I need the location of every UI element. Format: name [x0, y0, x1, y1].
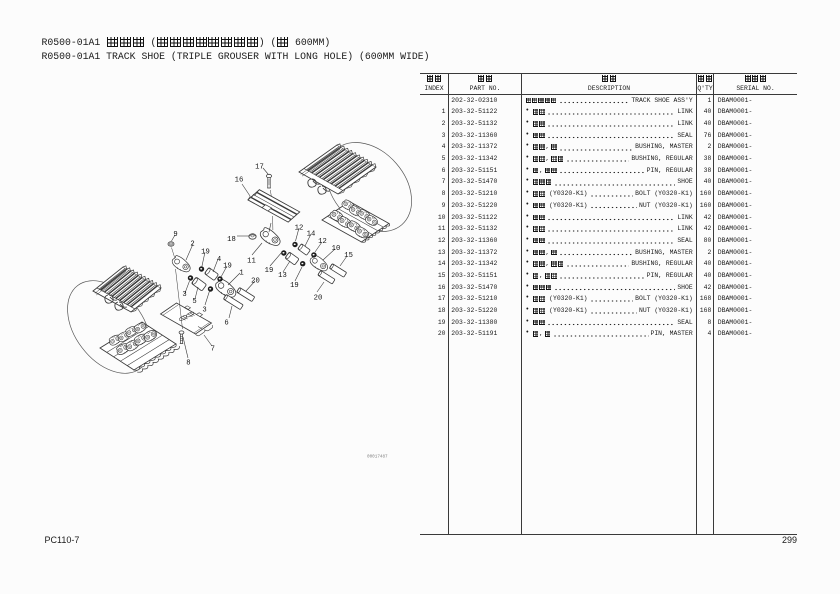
svg-text:9: 9 [173, 231, 177, 239]
svg-text:3: 3 [182, 291, 186, 299]
svg-text:12: 12 [318, 238, 327, 246]
svg-text:15: 15 [344, 252, 353, 260]
svg-text:2: 2 [190, 240, 194, 248]
svg-text:19: 19 [290, 282, 299, 290]
svg-text:11: 11 [247, 257, 256, 265]
svg-text:4: 4 [217, 256, 221, 264]
svg-text:00017487: 00017487 [367, 455, 388, 460]
svg-text:16: 16 [235, 176, 244, 184]
svg-text:12: 12 [295, 224, 304, 232]
svg-text:1: 1 [239, 269, 243, 277]
svg-text:14: 14 [307, 230, 316, 238]
svg-text:7: 7 [211, 346, 215, 354]
svg-text:19: 19 [223, 262, 232, 270]
svg-text:19: 19 [201, 248, 210, 256]
svg-text:17: 17 [255, 163, 264, 171]
svg-text:3: 3 [202, 306, 206, 314]
svg-text:10: 10 [332, 245, 341, 253]
svg-text:18: 18 [227, 236, 236, 244]
svg-text:20: 20 [251, 277, 260, 285]
svg-text:19: 19 [265, 267, 274, 275]
svg-text:8: 8 [186, 360, 190, 368]
svg-text:13: 13 [278, 272, 287, 280]
svg-text:20: 20 [314, 294, 323, 302]
svg-text:6: 6 [224, 319, 228, 327]
svg-text:5: 5 [192, 298, 196, 306]
